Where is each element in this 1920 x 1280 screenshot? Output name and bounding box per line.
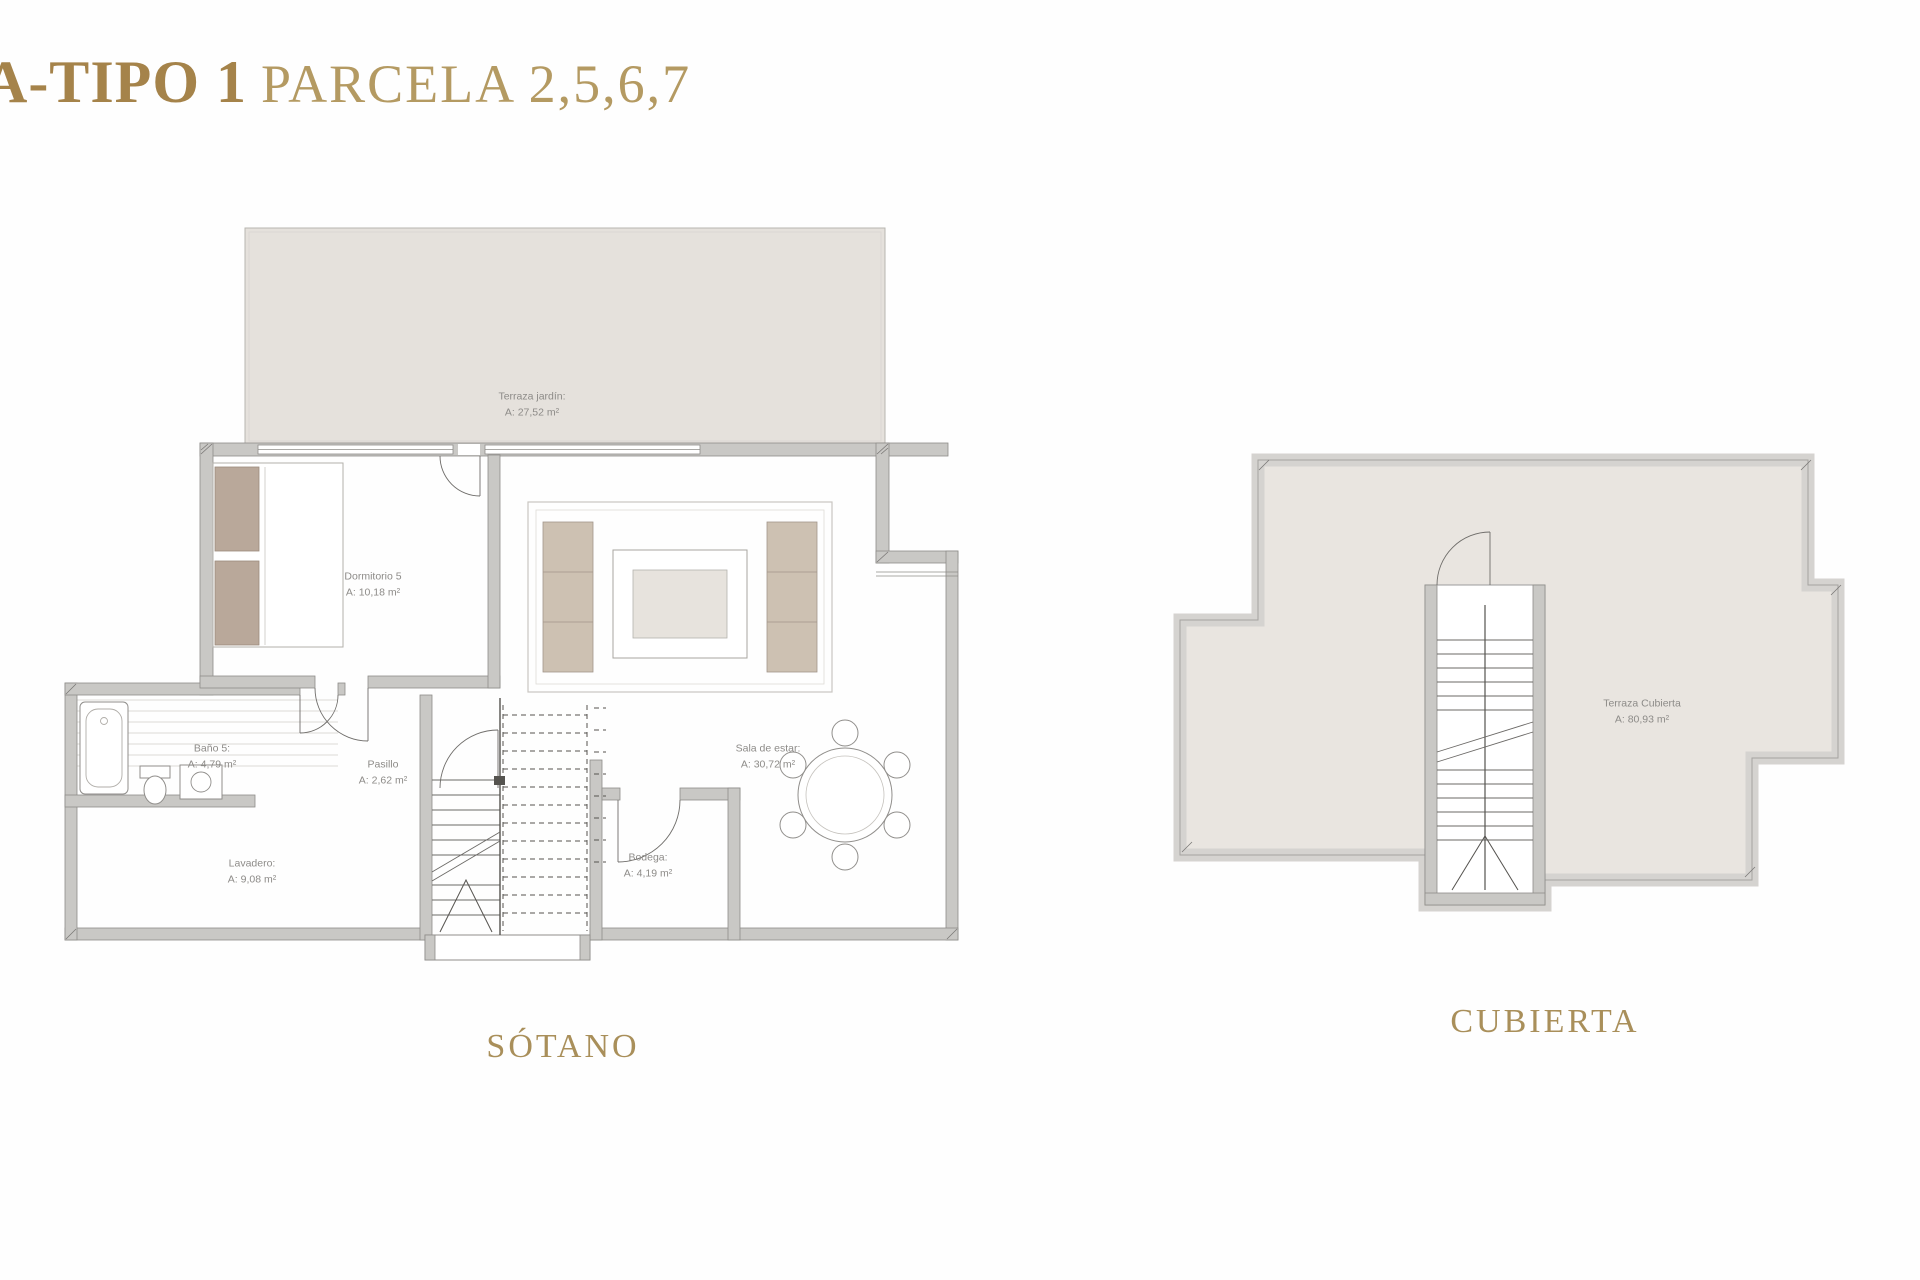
label-bodega: Bodega: A: 4,19 m² xyxy=(624,850,672,883)
sofa-group xyxy=(528,502,832,692)
sotano-plan-drawing xyxy=(60,220,960,965)
page-title-parcela: PARCELA 2,5,6,7 xyxy=(261,54,691,114)
label-terraza-jardin: Terraza jardín: A: 27,52 m² xyxy=(498,389,565,422)
staircase xyxy=(432,698,606,935)
label-dormitorio5: Dormitorio 5 A: 10,18 m² xyxy=(344,569,401,602)
window-glyphs xyxy=(258,445,958,576)
caption-cubierta: CUBIERTA xyxy=(1450,1003,1639,1041)
label-sala-de-estar: Sala de estar: A: 30,72 m² xyxy=(736,741,801,774)
page-title-type: A-TIPO 1 xyxy=(0,49,247,115)
label-terraza-cubierta: Terraza Cubierta A: 80,93 m² xyxy=(1603,696,1681,729)
stair-protrusion xyxy=(425,935,590,960)
roof-stairwell xyxy=(1425,532,1545,905)
label-lavadero: Lavadero: A: 9,08 m² xyxy=(228,856,276,889)
bathtub xyxy=(80,702,128,794)
caption-sotano: SÓTANO xyxy=(486,1028,639,1066)
label-pasillo: Pasillo A: 2,62 m² xyxy=(359,757,407,790)
floorplan-page: A-TIPO 1 PARCELA 2,5,6,7 xyxy=(0,0,1920,1280)
page-title: A-TIPO 1 PARCELA 2,5,6,7 xyxy=(0,48,691,117)
cubierta-plan-drawing xyxy=(1160,440,1850,920)
bed xyxy=(213,463,343,647)
label-bano5: Baño 5: A: 4,79 m² xyxy=(188,741,236,774)
